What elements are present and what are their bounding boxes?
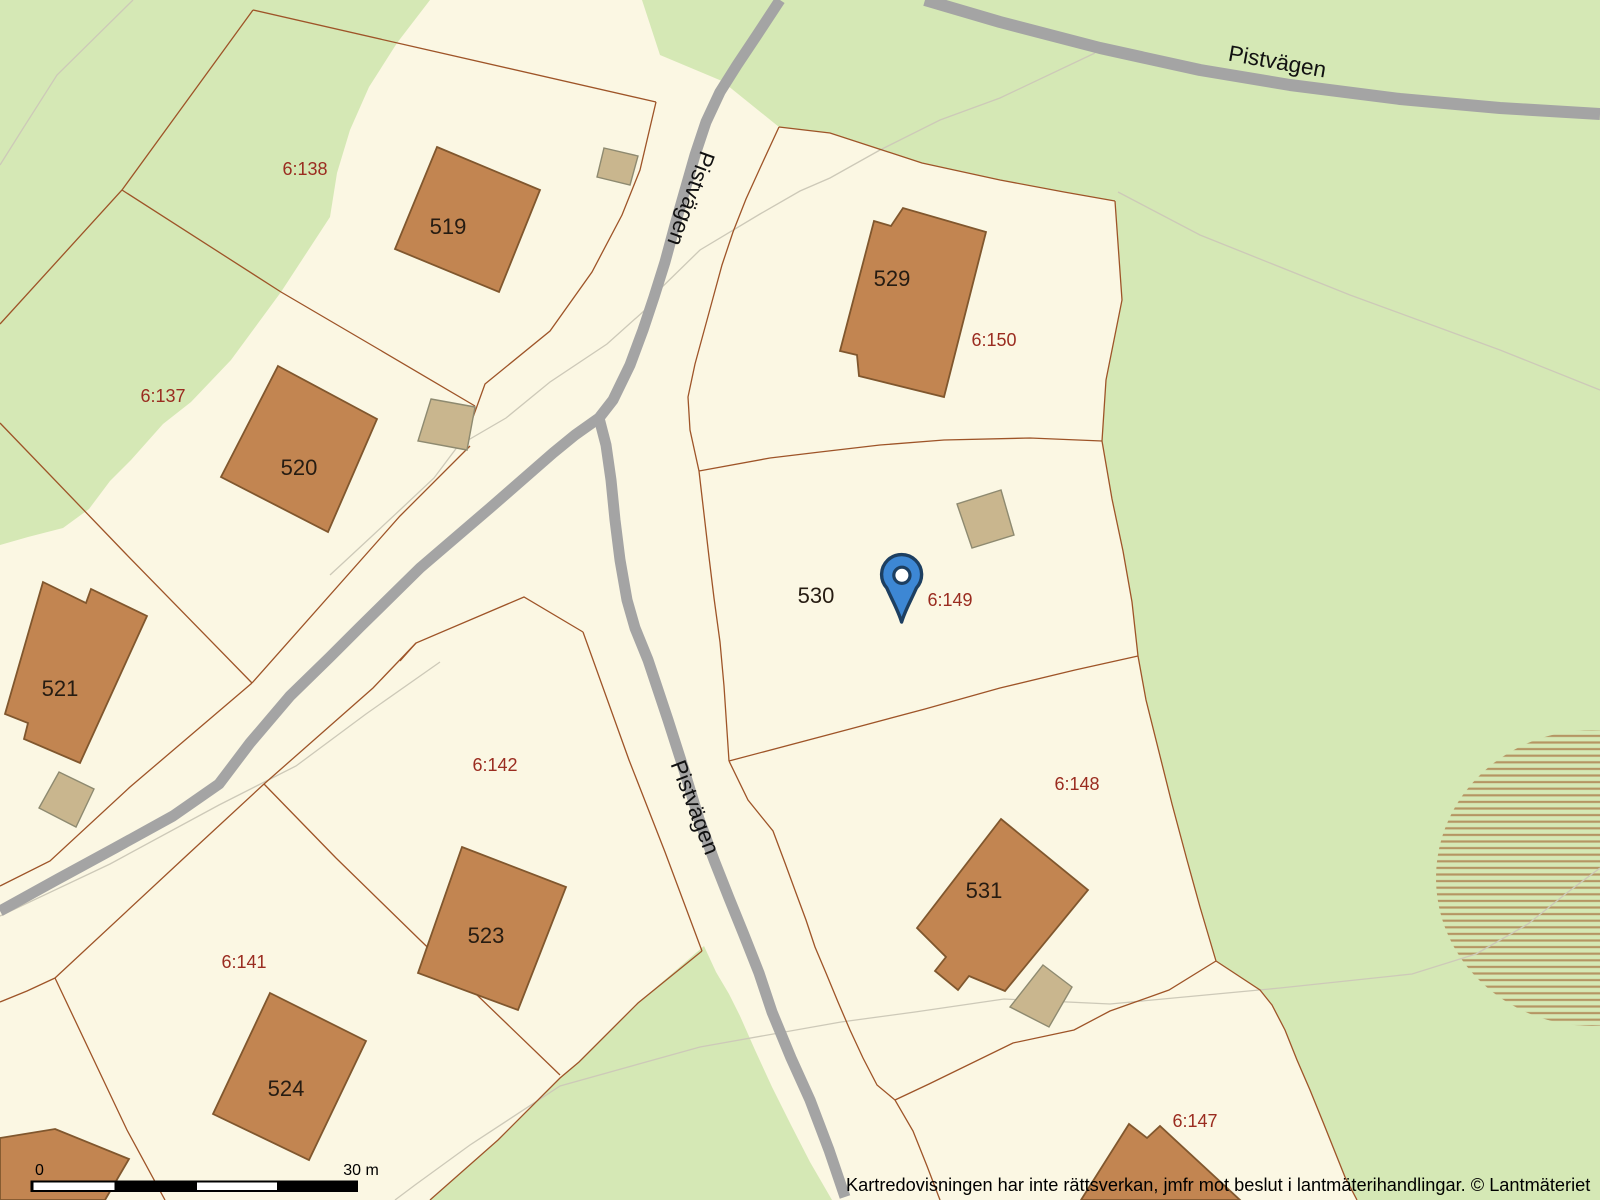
- svg-text:6:147: 6:147: [1172, 1111, 1217, 1131]
- svg-text:6:141: 6:141: [221, 952, 266, 972]
- svg-text:521: 521: [42, 676, 79, 701]
- svg-text:519: 519: [430, 214, 467, 239]
- svg-text:520: 520: [281, 455, 318, 480]
- svg-text:529: 529: [874, 266, 911, 291]
- svg-text:Kartredovisningen har inte rät: Kartredovisningen har inte rättsverkan, …: [846, 1175, 1590, 1195]
- svg-text:6:149: 6:149: [927, 590, 972, 610]
- svg-text:523: 523: [468, 923, 505, 948]
- svg-text:6:137: 6:137: [140, 386, 185, 406]
- svg-text:30 m: 30 m: [343, 1162, 379, 1179]
- svg-text:531: 531: [966, 878, 1003, 903]
- svg-text:6:138: 6:138: [282, 159, 327, 179]
- svg-text:6:148: 6:148: [1054, 774, 1099, 794]
- svg-text:0: 0: [35, 1162, 44, 1179]
- svg-text:6:150: 6:150: [971, 330, 1016, 350]
- svg-text:530: 530: [798, 583, 835, 608]
- svg-text:524: 524: [268, 1076, 305, 1101]
- svg-text:6:142: 6:142: [472, 755, 517, 775]
